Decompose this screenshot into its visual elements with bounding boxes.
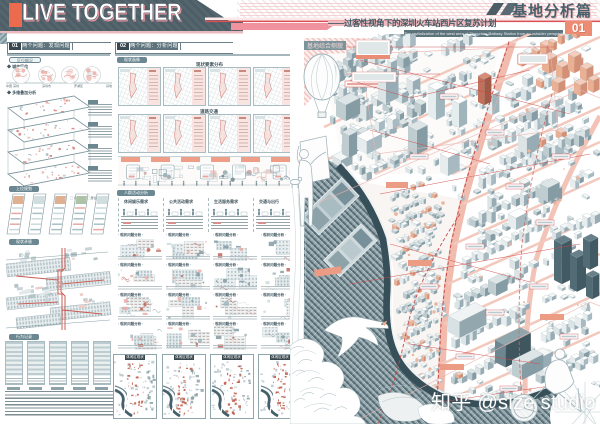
svg-text:基地综合侧貌: 基地综合侧貌	[307, 42, 343, 50]
